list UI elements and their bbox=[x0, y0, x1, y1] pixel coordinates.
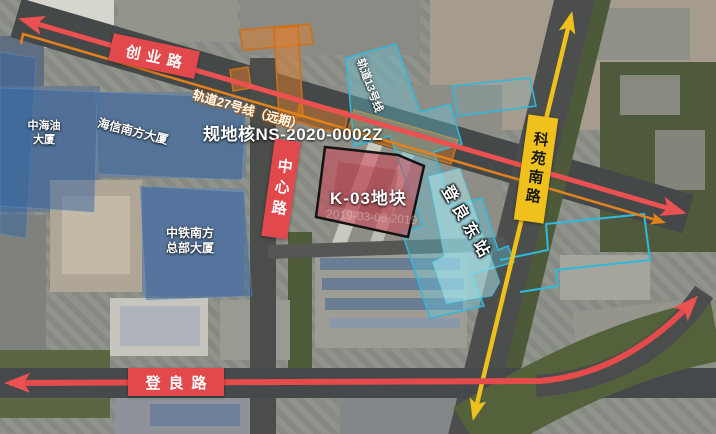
line13-corridor-outline bbox=[452, 78, 536, 116]
banner-dengliang-road: 登良路 bbox=[128, 368, 224, 396]
building-cnooc-line2: 大厦 bbox=[33, 134, 55, 146]
building-crcc-line1: 中铁南方 bbox=[166, 226, 214, 240]
planning-map: 规地核NS-2020-0002Z 轨道27号线（远期） 轨道13号线 登良东站 … bbox=[0, 0, 716, 434]
building-cnooc-line1: 中海油 bbox=[28, 120, 61, 132]
plot-k03-label: K-03地块 bbox=[330, 184, 407, 209]
blue-overlay-cnooc bbox=[0, 88, 98, 212]
dengliang-red-arrow bbox=[10, 300, 694, 383]
building-cnooc-label: 中海油 大厦 bbox=[16, 120, 72, 148]
line13-corridor-outline bbox=[500, 214, 650, 292]
building-crcc-line2: 总部大厦 bbox=[166, 241, 214, 255]
building-crcc-label: 中铁南方 总部大厦 bbox=[152, 226, 228, 256]
